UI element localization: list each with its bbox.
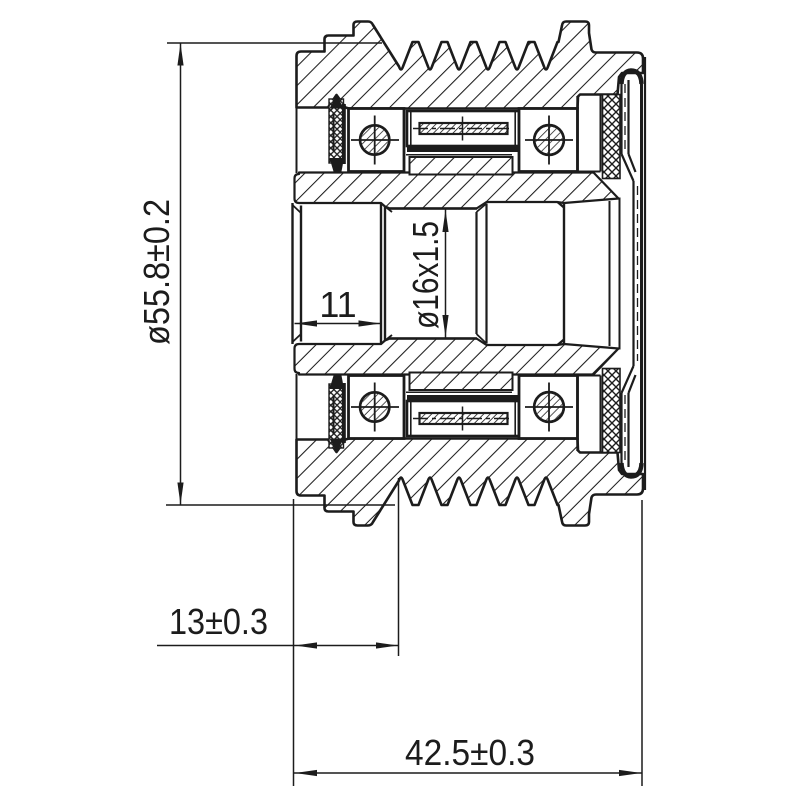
svg-text:13±0.3: 13±0.3 [169,601,268,642]
svg-text:ø16x1.5: ø16x1.5 [405,221,446,329]
svg-text:42.5±0.3: 42.5±0.3 [405,732,535,773]
svg-text:ø55.8±0.2: ø55.8±0.2 [136,199,177,345]
svg-text:11: 11 [319,284,356,325]
